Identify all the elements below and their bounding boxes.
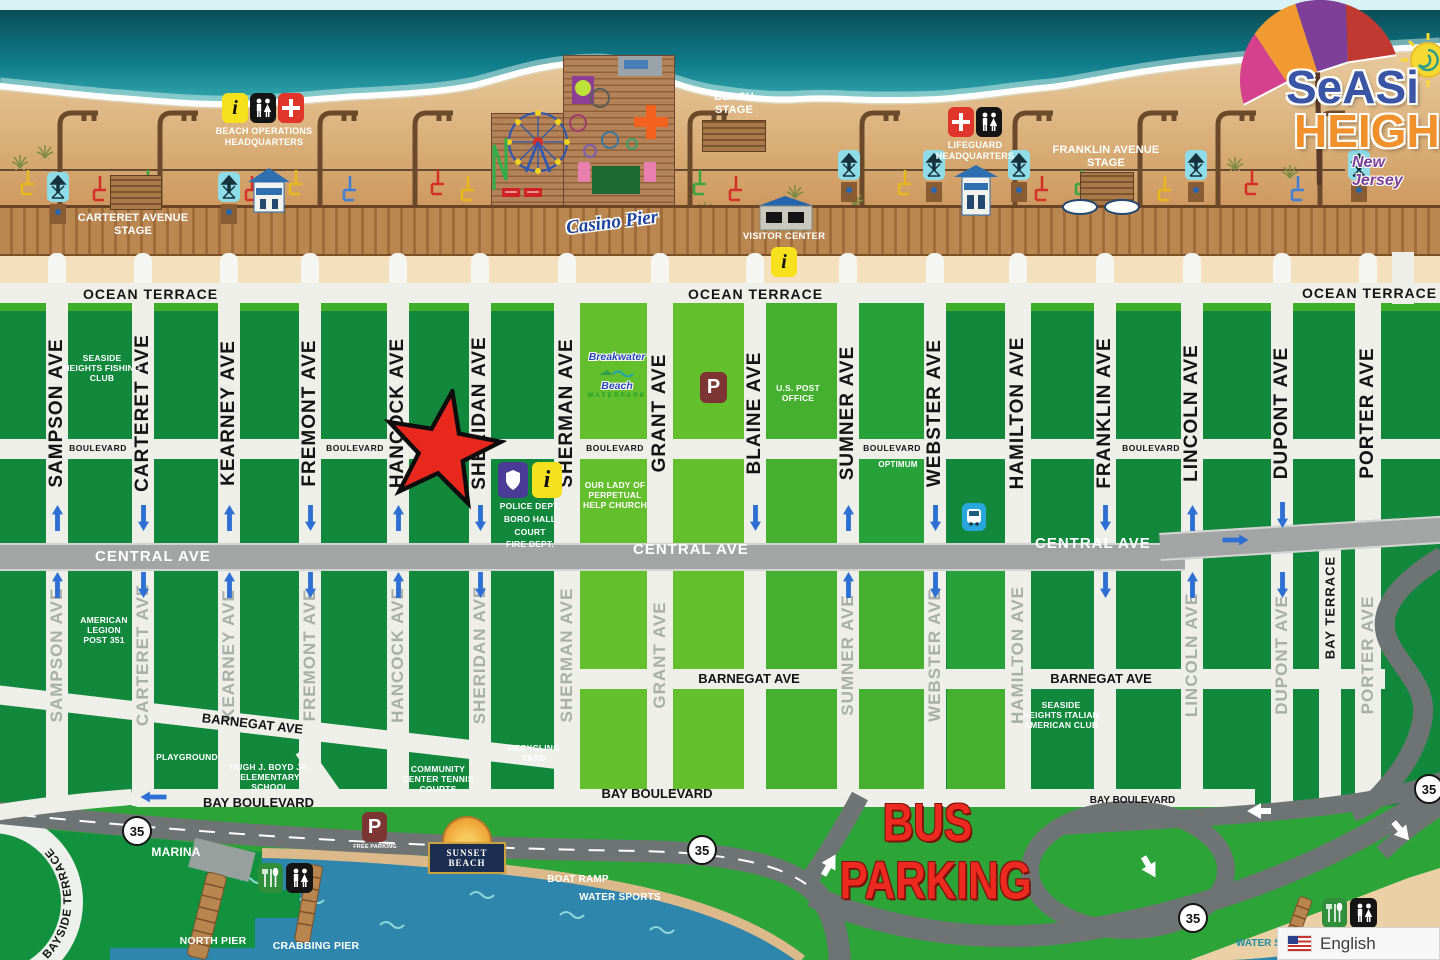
beach-stage-structure [702, 120, 766, 152]
street-label-hamilton: HAMILTON AVE [1007, 307, 1029, 519]
visitor-center-label: VISITOR CENTER [738, 231, 830, 242]
playground-label: PLAYGROUND [156, 752, 218, 762]
street-label-blaine: BLAINE AVE [744, 307, 766, 519]
water-sports-label: WATER SPORTS [576, 892, 664, 904]
waterpark-logo: Breakwater Beach WATERPARK [580, 352, 654, 399]
school-label: HUGH J. BOYD JR. ELEMENTARY SCHOOL [228, 762, 312, 792]
optimum-label: OPTIMUM [870, 460, 926, 469]
bus-stop-icon [962, 503, 986, 531]
street-label-sampson: SAMPSON AVE [46, 307, 68, 519]
restroom-icon [250, 93, 276, 123]
pagoda-kiosk [246, 166, 292, 216]
visitor-center-building [752, 194, 818, 232]
police-badge-icon [498, 462, 528, 498]
fishing-club-label: SEASIDE HEIGHTS FISHING CLUB [62, 353, 142, 383]
italian-club-label: SEASIDE HEIGHTS ITALIAN AMERICAN CLUB [1022, 700, 1100, 730]
boardwalk-benches [1060, 198, 1150, 216]
route-35-shield: 35 [1414, 774, 1440, 804]
street-label-sumner: SUMNER AVE [837, 307, 859, 519]
visitor-info-icon: i [771, 247, 797, 277]
info-icon: i [532, 462, 562, 498]
street-label-carteret: CARTERET AVE [132, 307, 154, 519]
logo-heights: HEIGH [1294, 104, 1440, 158]
route-35-shield: 35 [122, 816, 152, 846]
street-label-fremont: FREMONT AVE [299, 307, 321, 519]
water-sports-partial-label: WATER S [1236, 938, 1281, 949]
route-35-shield: 35 [1178, 903, 1208, 933]
bus-parking-label-line2: PARKING [840, 849, 1015, 911]
street-label-lincoln: LINCOLN AVE [1181, 307, 1203, 519]
restaurant-icon [1322, 898, 1347, 928]
seaside-heights-map: Casino Pier i BEACH OPERATIONS HEADQUART… [0, 0, 1440, 960]
free-parking-label: FREE PARKING [350, 844, 400, 850]
street-label-dupont: DUPONT AVE [1271, 307, 1293, 519]
franklin-stage-label: FRANKLIN AVENUE STAGE [1042, 144, 1170, 170]
street-label-franklin: FRANKLIN AVE [1094, 307, 1116, 519]
free-parking-icon: P [362, 812, 387, 842]
route-35-shield: 35 [687, 835, 717, 865]
beach-operations-hq-label: BEACH OPERATIONS HEADQUARTERS [208, 126, 320, 147]
us-flag-icon [1288, 936, 1311, 951]
recycling-yard-label: RECYCLING YARD [506, 743, 562, 763]
church-label: OUR LADY OF PERPETUAL HELP CHURCH [576, 480, 654, 510]
municipal-complex-label: POLICE DEPT.BORO HALL COURTFIRE DEPT. [490, 500, 570, 551]
info-icon: i [222, 93, 248, 123]
north-pier-label: NORTH PIER [178, 935, 248, 947]
street-label-bay-terrace: BAY TERRACE [1323, 548, 1338, 668]
restroom-icon [976, 107, 1002, 137]
carteret-stage-structure [110, 175, 162, 210]
crabbing-pier-label: CRABBING PIER [272, 940, 360, 952]
first-aid-icon [948, 107, 974, 137]
logo-new-jersey: New Jersey [1352, 154, 1440, 190]
lifeguard-hq-building [950, 163, 1002, 217]
bus-parking-label-line1: BUS [875, 791, 981, 853]
sun-sign-top [442, 816, 492, 842]
parking-icon: P [700, 372, 727, 403]
restaurant-icon [258, 863, 283, 893]
language-selector[interactable]: English [1277, 927, 1440, 960]
boat-ramp-label: BOAT RAMP [545, 874, 611, 886]
restroom-icon [286, 863, 313, 893]
post-office-label: U.S. POST OFFICE [770, 383, 826, 403]
street-label-porter: PORTER AVE [1357, 307, 1379, 519]
community-center-label: COMMUNITY CENTER TENNIS COURTS [400, 764, 476, 794]
marina-label: MARINA [146, 845, 206, 859]
street-label-webster: WEBSTER AVE [924, 307, 946, 519]
restroom-icon [1350, 898, 1377, 928]
language-selector-value[interactable]: English [1320, 934, 1376, 954]
street-label-kearney: KEARNEY AVE [218, 307, 240, 519]
beach-stage-label: BEACH STAGE [703, 91, 765, 117]
sunset-beach-sign: SUNSET BEACH [428, 816, 506, 880]
star-marker [370, 378, 514, 522]
lifeguard-hq-label: LIFEGUARD HEADQUARTERS [928, 140, 1022, 161]
first-aid-icon [278, 93, 304, 123]
american-legion-label: AMERICAN LEGION POST 351 [76, 615, 132, 645]
carteret-stage-label: CARTERET AVENUE STAGE [68, 212, 198, 238]
